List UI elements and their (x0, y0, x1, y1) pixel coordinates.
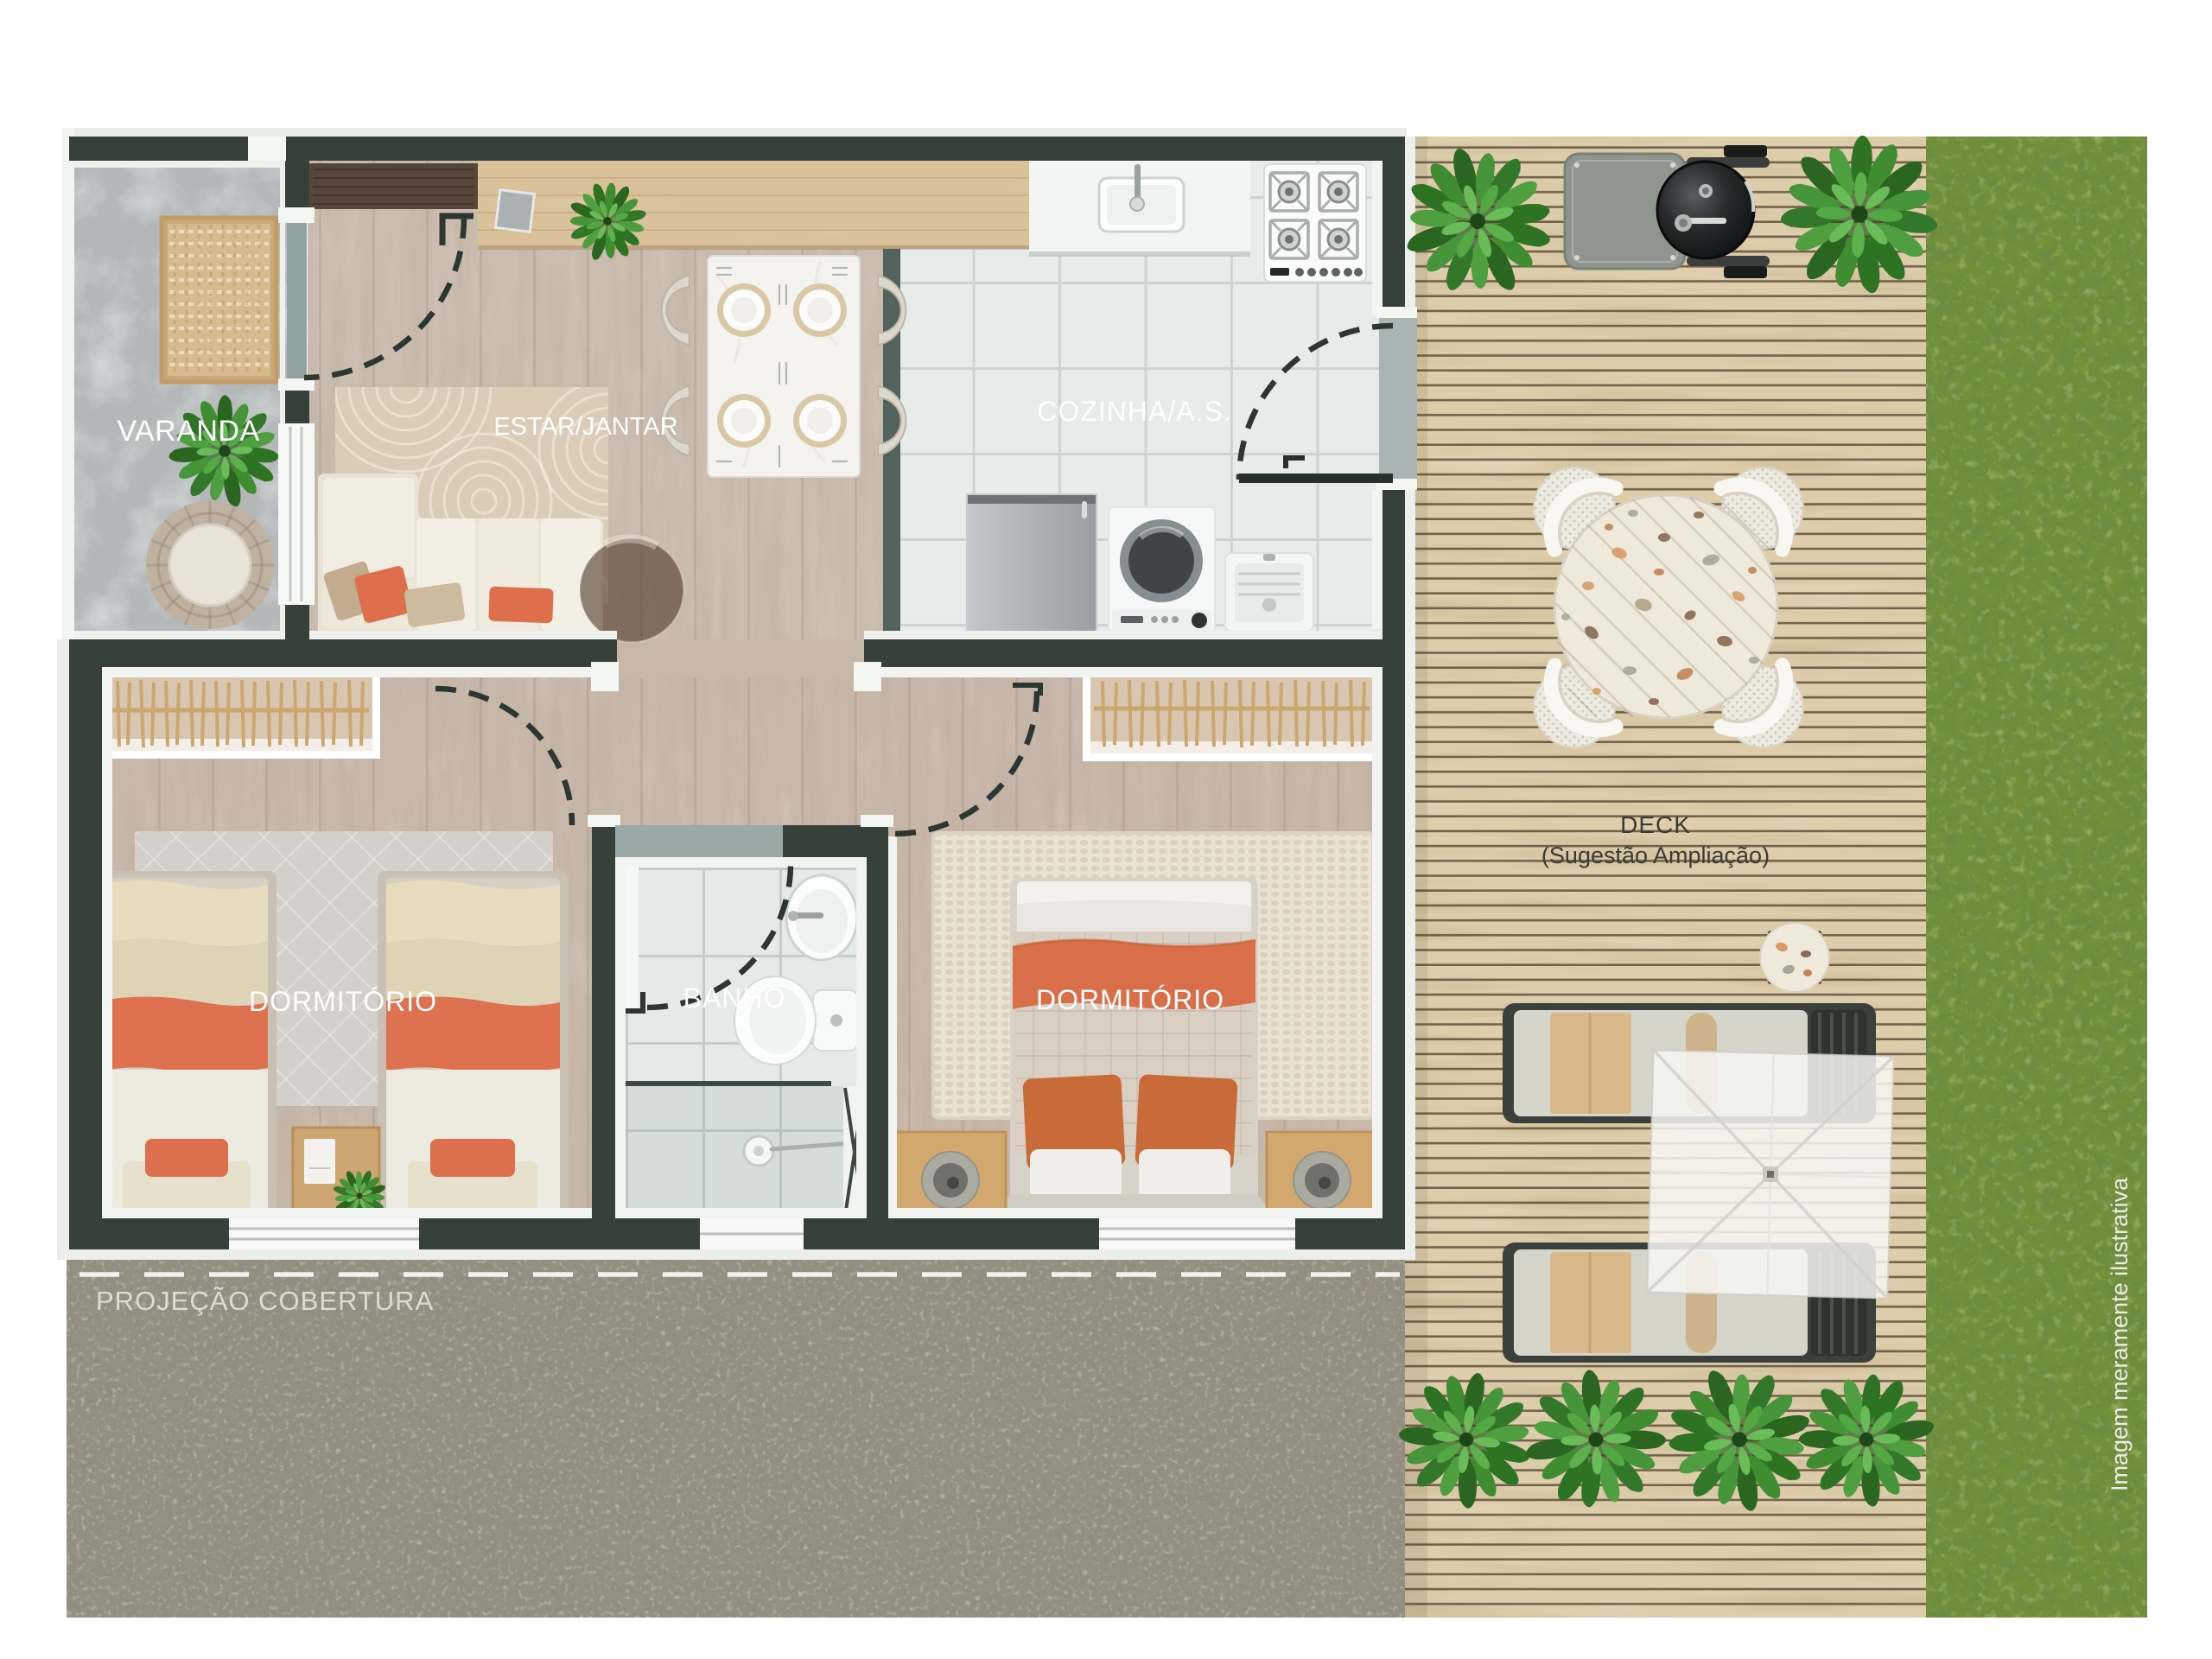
svg-text:ESTAR/JANTAR: ESTAR/JANTAR (493, 413, 677, 441)
svg-text:Imagem meramente ilustrativa: Imagem meramente ilustrativa (2107, 1177, 2133, 1491)
svg-text:BANHO: BANHO (683, 982, 786, 1014)
svg-text:VARANDA: VARANDA (117, 415, 259, 448)
svg-text:DORMITÓRIO: DORMITÓRIO (1036, 984, 1224, 1015)
svg-text:DECK: DECK (1620, 811, 1691, 838)
svg-text:(Sugestão Ampliação): (Sugestão Ampliação) (1541, 842, 1770, 868)
svg-text:COZINHA/A.S.: COZINHA/A.S. (1037, 396, 1231, 427)
svg-text:DORMITÓRIO: DORMITÓRIO (249, 986, 437, 1017)
svg-text:PROJEÇÃO COBERTURA: PROJEÇÃO COBERTURA (96, 1286, 434, 1316)
